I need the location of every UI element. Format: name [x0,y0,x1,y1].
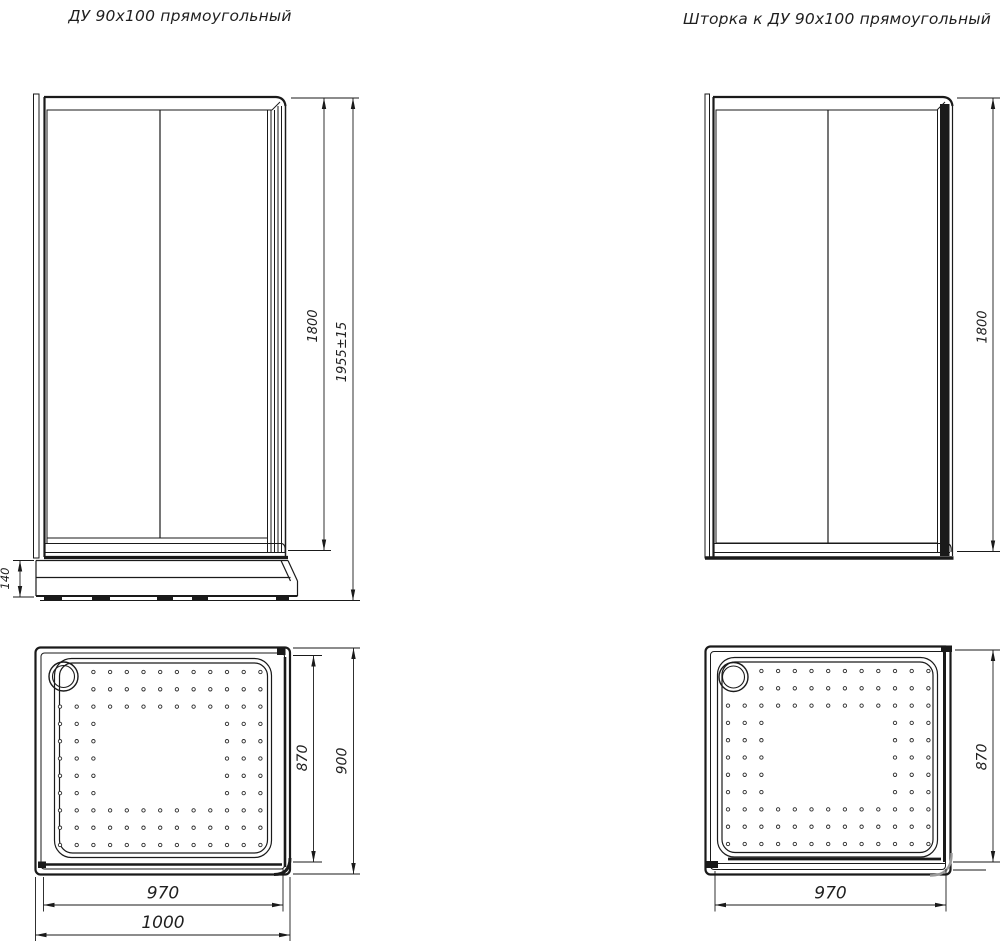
anti-slip-dot [142,809,145,812]
anti-slip-dot [175,705,178,708]
frame-bottom-rail [713,544,950,553]
anti-slip-dot [108,809,111,812]
anti-slip-dot [209,809,212,812]
anti-slip-dot [92,705,95,708]
anti-slip-dot [910,669,913,672]
anti-slip-dot [225,670,228,673]
anti-slip-dot [760,790,763,793]
anti-slip-dot [192,688,195,691]
anti-slip-dot [259,791,262,794]
anti-slip-dot [92,774,95,777]
anti-slip-dot [142,688,145,691]
anti-slip-dot [242,722,245,725]
anti-slip-dot [142,670,145,673]
arrowhead [36,933,47,937]
anti-slip-dot [776,669,779,672]
anti-slip-dot [927,808,930,811]
arrowhead [272,903,283,907]
anti-slip-dot [159,843,162,846]
wall-profile-left [705,94,710,558]
anti-slip-dot [726,739,729,742]
corner-profile-mark [277,648,286,655]
anti-slip-dot [893,773,896,776]
anti-slip-dot [726,773,729,776]
screen-top-dimensions: 870 970 [715,650,1000,912]
anti-slip-dot [159,688,162,691]
arrowhead [351,590,355,601]
anti-slip-dot [225,791,228,794]
anti-slip-dot [242,688,245,691]
anti-slip-dot [58,826,61,829]
anti-slip-dot [743,756,746,759]
anti-slip-dot [175,670,178,673]
anti-slip-dot [259,757,262,760]
dim-label-total-height: 1955±15 [335,322,350,383]
arrowhead [322,98,326,109]
anti-slip-dot [209,705,212,708]
anti-slip-dot [225,705,228,708]
anti-slip-dot [259,826,262,829]
anti-slip-dot [877,808,880,811]
anti-slip-dot [192,670,195,673]
anti-slip-dot [209,688,212,691]
anti-slip-dot [159,809,162,812]
anti-slip-dot [175,809,178,812]
dim-label-tray-height: 140 [0,568,12,590]
anti-slip-dot [175,688,178,691]
corner-profile-mark [941,646,952,653]
anti-slip-dot [125,688,128,691]
anti-slip-dot [927,687,930,690]
anti-slip-dot [125,826,128,829]
anti-slip-dot [225,722,228,725]
anti-slip-dot [242,774,245,777]
anti-slip-dot [75,740,78,743]
anti-slip-dot [108,826,111,829]
arrowhead [991,851,995,862]
anti-slip-dot [108,705,111,708]
frame-bottom-rail [44,544,285,553]
tray-top-view [36,648,291,875]
anti-slip-dot [58,740,61,743]
arrowhead [991,541,995,552]
wall-profile-left [34,94,40,558]
arrowhead [935,903,946,907]
dim-label-glass-height: 1800 [306,309,321,342]
anti-slip-dot [776,687,779,690]
anti-slip-dot [877,825,880,828]
anti-slip-dot [927,790,930,793]
anti-slip-dot [58,774,61,777]
anti-slip-dot [58,757,61,760]
arrowhead [18,586,22,597]
anti-slip-dot [927,739,930,742]
anti-slip-dot [760,721,763,724]
tray-outer-edge [706,647,951,875]
anti-slip-dot [843,825,846,828]
anti-slip-dot [843,687,846,690]
anti-slip-dot [793,808,796,811]
tray-top-dimensions: 870 900 970 1000 [36,648,361,941]
technical-drawing-canvas: ДУ 90x100 прямоугольный Шторка к ДУ 90x1… [0,0,1000,941]
anti-slip-dot [760,808,763,811]
anti-slip-dot [760,704,763,707]
dim-label-depth-inner: 870 [295,745,311,772]
arrowhead [311,851,315,862]
anti-slip-dot [75,843,78,846]
anti-slip-dot [776,704,779,707]
anti-slip-dot [225,740,228,743]
tray-floor-inner [722,662,933,853]
anti-slip-dot [893,756,896,759]
anti-slip-dot [125,809,128,812]
anti-slip-dot [860,669,863,672]
anti-slip-dot [159,705,162,708]
anti-slip-dot [860,825,863,828]
anti-slip-dot [927,825,930,828]
anti-slip-dot [192,809,195,812]
anti-slip-dot [743,721,746,724]
arrowhead [991,650,995,661]
anti-slip-dot [192,826,195,829]
anti-slip-dot [776,808,779,811]
anti-slip-dot [259,843,262,846]
arrowhead [18,561,22,572]
anti-slip-dot [793,669,796,672]
anti-slip-dot [910,687,913,690]
anti-slip-dot [877,669,880,672]
anti-slip-dot [92,740,95,743]
anti-slip-dot [92,843,95,846]
anti-slip-dot [75,774,78,777]
title-enclosure: ДУ 90x100 прямоугольный [67,7,291,25]
anti-slip-dot [760,687,763,690]
anti-slip-dot [142,843,145,846]
anti-slip-dot [827,669,830,672]
anti-slip-dot [860,687,863,690]
anti-slip-dot [810,825,813,828]
dim-label-width-outer: 1000 [141,913,184,933]
anti-slip-dot [810,808,813,811]
anti-slip-dot [793,687,796,690]
anti-slip-dot [810,669,813,672]
anti-slip-dot [893,739,896,742]
anti-slip-dot [776,842,779,845]
anti-slip-dot [910,756,913,759]
arrowhead [322,540,326,551]
anti-slip-dot [877,704,880,707]
anti-slip-dot [192,705,195,708]
dim-label-width-inner: 970 [147,884,179,904]
anti-slip-dot [927,669,930,672]
enclosure-front-dimensions: 1800 1955±15 140 [0,98,359,601]
anti-slip-dot [58,722,61,725]
frame-top-rail [713,97,953,106]
anti-slip-dot [743,790,746,793]
anti-slip-dot [827,825,830,828]
anti-slip-dot [927,756,930,759]
tray-floor-inner [60,663,268,853]
anti-slip-dot [827,687,830,690]
anti-slip-dot [843,808,846,811]
anti-slip-dot [877,842,880,845]
anti-slip-dot [893,842,896,845]
anti-slip-pattern [726,669,930,845]
anti-slip-dot [192,843,195,846]
dim-label-glass-height: 1800 [976,310,991,343]
glass-edge-profile [940,104,950,556]
anti-slip-dot [108,843,111,846]
anti-slip-dot [760,773,763,776]
anti-slip-dot [92,757,95,760]
anti-slip-dot [108,688,111,691]
anti-slip-dot [760,756,763,759]
anti-slip-dot [760,739,763,742]
tray-rim [41,653,285,869]
anti-slip-dot [726,721,729,724]
anti-slip-dot [175,843,178,846]
anti-slip-dot [793,842,796,845]
anti-slip-dot [259,722,262,725]
anti-slip-dot [58,809,61,812]
corner-profile-mark [706,861,719,868]
anti-slip-dot [75,757,78,760]
anti-slip-dot [125,705,128,708]
anti-slip-dot [225,826,228,829]
anti-slip-dot [893,790,896,793]
anti-slip-dot [760,669,763,672]
anti-slip-dot [726,808,729,811]
anti-slip-dot [92,688,95,691]
enclosure-front-view [34,94,361,601]
drain-outline [719,663,748,692]
anti-slip-dot [910,842,913,845]
door-channel-lines [268,106,282,552]
anti-slip-dot [108,670,111,673]
arrowhead [351,648,355,659]
anti-slip-dot [760,842,763,845]
anti-slip-pattern [58,670,262,846]
anti-slip-dot [743,704,746,707]
arrowhead [351,863,355,874]
tray-front-profile [36,561,298,597]
dim-label-depth-inner: 870 [975,744,991,771]
anti-slip-dot [159,670,162,673]
anti-slip-dot [726,756,729,759]
anti-slip-dot [726,704,729,707]
anti-slip-dot [927,704,930,707]
anti-slip-dot [92,670,95,673]
drain-hole [53,666,75,688]
anti-slip-dot [893,669,896,672]
arrowhead [351,98,355,109]
anti-slip-dot [910,825,913,828]
anti-slip-dot [910,790,913,793]
anti-slip-dot [910,773,913,776]
anti-slip-dot [75,791,78,794]
anti-slip-dot [242,740,245,743]
anti-slip-dot [760,825,763,828]
anti-slip-dot [209,670,212,673]
screen-top-view [706,646,953,876]
anti-slip-dot [92,722,95,725]
anti-slip-dot [843,842,846,845]
anti-slip-dot [75,705,78,708]
anti-slip-dot [259,670,262,673]
anti-slip-dot [225,774,228,777]
anti-slip-dot [726,842,729,845]
anti-slip-dot [225,843,228,846]
anti-slip-dot [242,809,245,812]
anti-slip-dot [92,826,95,829]
anti-slip-dot [242,757,245,760]
anti-slip-dot [810,687,813,690]
screen-front-view [705,94,954,558]
arrowhead [715,903,726,907]
anti-slip-dot [225,809,228,812]
anti-slip-dot [743,739,746,742]
arrowhead [991,98,995,109]
frame-top-rail [44,97,286,106]
anti-slip-dot [259,809,262,812]
tray-floor-outer [55,659,272,858]
anti-slip-dot [910,704,913,707]
anti-slip-dot [125,670,128,673]
anti-slip-dot [860,808,863,811]
anti-slip-dot [259,705,262,708]
anti-slip-dot [893,808,896,811]
arrowhead [44,903,55,907]
anti-slip-dot [726,790,729,793]
anti-slip-dot [259,688,262,691]
anti-slip-dot [910,808,913,811]
anti-slip-dot [75,809,78,812]
anti-slip-dot [58,705,61,708]
anti-slip-dot [827,704,830,707]
anti-slip-dot [893,825,896,828]
anti-slip-dot [793,825,796,828]
anti-slip-dot [92,791,95,794]
anti-slip-dot [175,826,178,829]
anti-slip-dot [827,842,830,845]
anti-slip-dot [259,740,262,743]
anti-slip-dot [58,791,61,794]
dim-label-width-inner: 970 [814,884,846,904]
screen-front-dimensions: 1800 [957,98,1000,552]
arrowhead [279,933,290,937]
anti-slip-dot [776,825,779,828]
anti-slip-dot [159,826,162,829]
anti-slip-dot [877,687,880,690]
anti-slip-dot [209,826,212,829]
anti-slip-dot [58,843,61,846]
anti-slip-dot [209,843,212,846]
anti-slip-dot [927,842,930,845]
anti-slip-dot [726,825,729,828]
anti-slip-dot [810,704,813,707]
anti-slip-dot [743,842,746,845]
anti-slip-dot [810,842,813,845]
anti-slip-dot [242,843,245,846]
anti-slip-dot [142,826,145,829]
anti-slip-dot [92,809,95,812]
dim-label-depth-outer: 900 [335,748,351,775]
anti-slip-dot [225,688,228,691]
anti-slip-dot [843,704,846,707]
arrowhead [311,656,315,667]
anti-slip-dot [259,774,262,777]
anti-slip-dot [910,739,913,742]
anti-slip-dot [743,825,746,828]
anti-slip-dot [927,773,930,776]
anti-slip-dot [75,722,78,725]
anti-slip-dot [843,669,846,672]
anti-slip-dot [893,721,896,724]
anti-slip-dot [927,721,930,724]
anti-slip-dot [893,687,896,690]
anti-slip-dot [910,721,913,724]
anti-slip-dot [860,842,863,845]
anti-slip-dot [793,704,796,707]
anti-slip-dot [242,705,245,708]
anti-slip-dot [860,704,863,707]
anti-slip-dot [225,757,228,760]
anti-slip-dot [242,791,245,794]
anti-slip-dot [125,843,128,846]
title-screen: Шторка к ДУ 90x100 прямоугольный [683,10,991,28]
anti-slip-dot [743,773,746,776]
anti-slip-dot [242,670,245,673]
drain-hole [723,666,745,688]
corner-profile-mark [38,862,46,869]
anti-slip-dot [75,826,78,829]
anti-slip-dot [743,808,746,811]
anti-slip-dot [893,704,896,707]
anti-slip-dot [242,826,245,829]
anti-slip-dot [827,808,830,811]
anti-slip-dot [142,705,145,708]
